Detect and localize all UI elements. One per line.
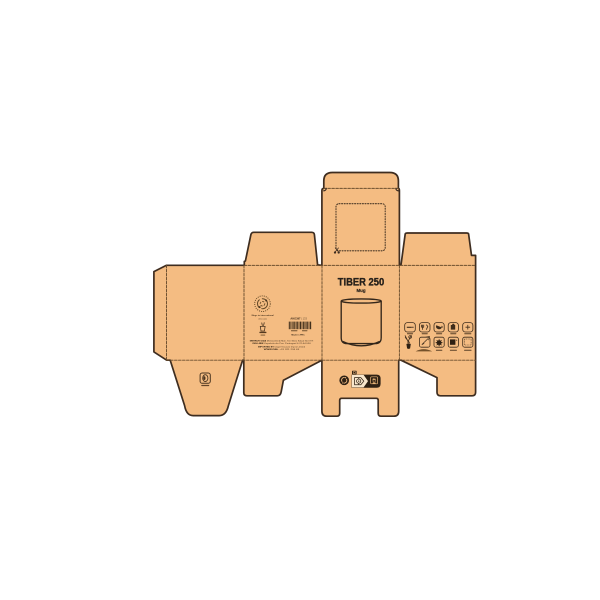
svg-text:Mug: Mug: [356, 288, 365, 293]
svg-text:2990 4BK Kapakule dis Pas. Por: 2990 4BK Kapakule dis Pas. Portingael 4-…: [252, 342, 312, 345]
svg-text:Mugs to international: Mugs to international: [252, 314, 275, 317]
svg-text:who cares: who cares: [258, 317, 267, 320]
svg-text:MERKUR GIDA Merkezefendi Mah.: MERKUR GIDA Merkezefendi Mah. Tire Sites…: [250, 340, 314, 343]
svg-text:WWW.DBL +31 321 234 63: WWW.DBL +31 321 234 63: [264, 349, 301, 351]
svg-text:Made in PRC: Made in PRC: [291, 334, 305, 336]
svg-text:TIBER 250: TIBER 250: [338, 276, 385, 288]
svg-text:AHG397 | 133: AHG397 | 133: [290, 317, 307, 321]
